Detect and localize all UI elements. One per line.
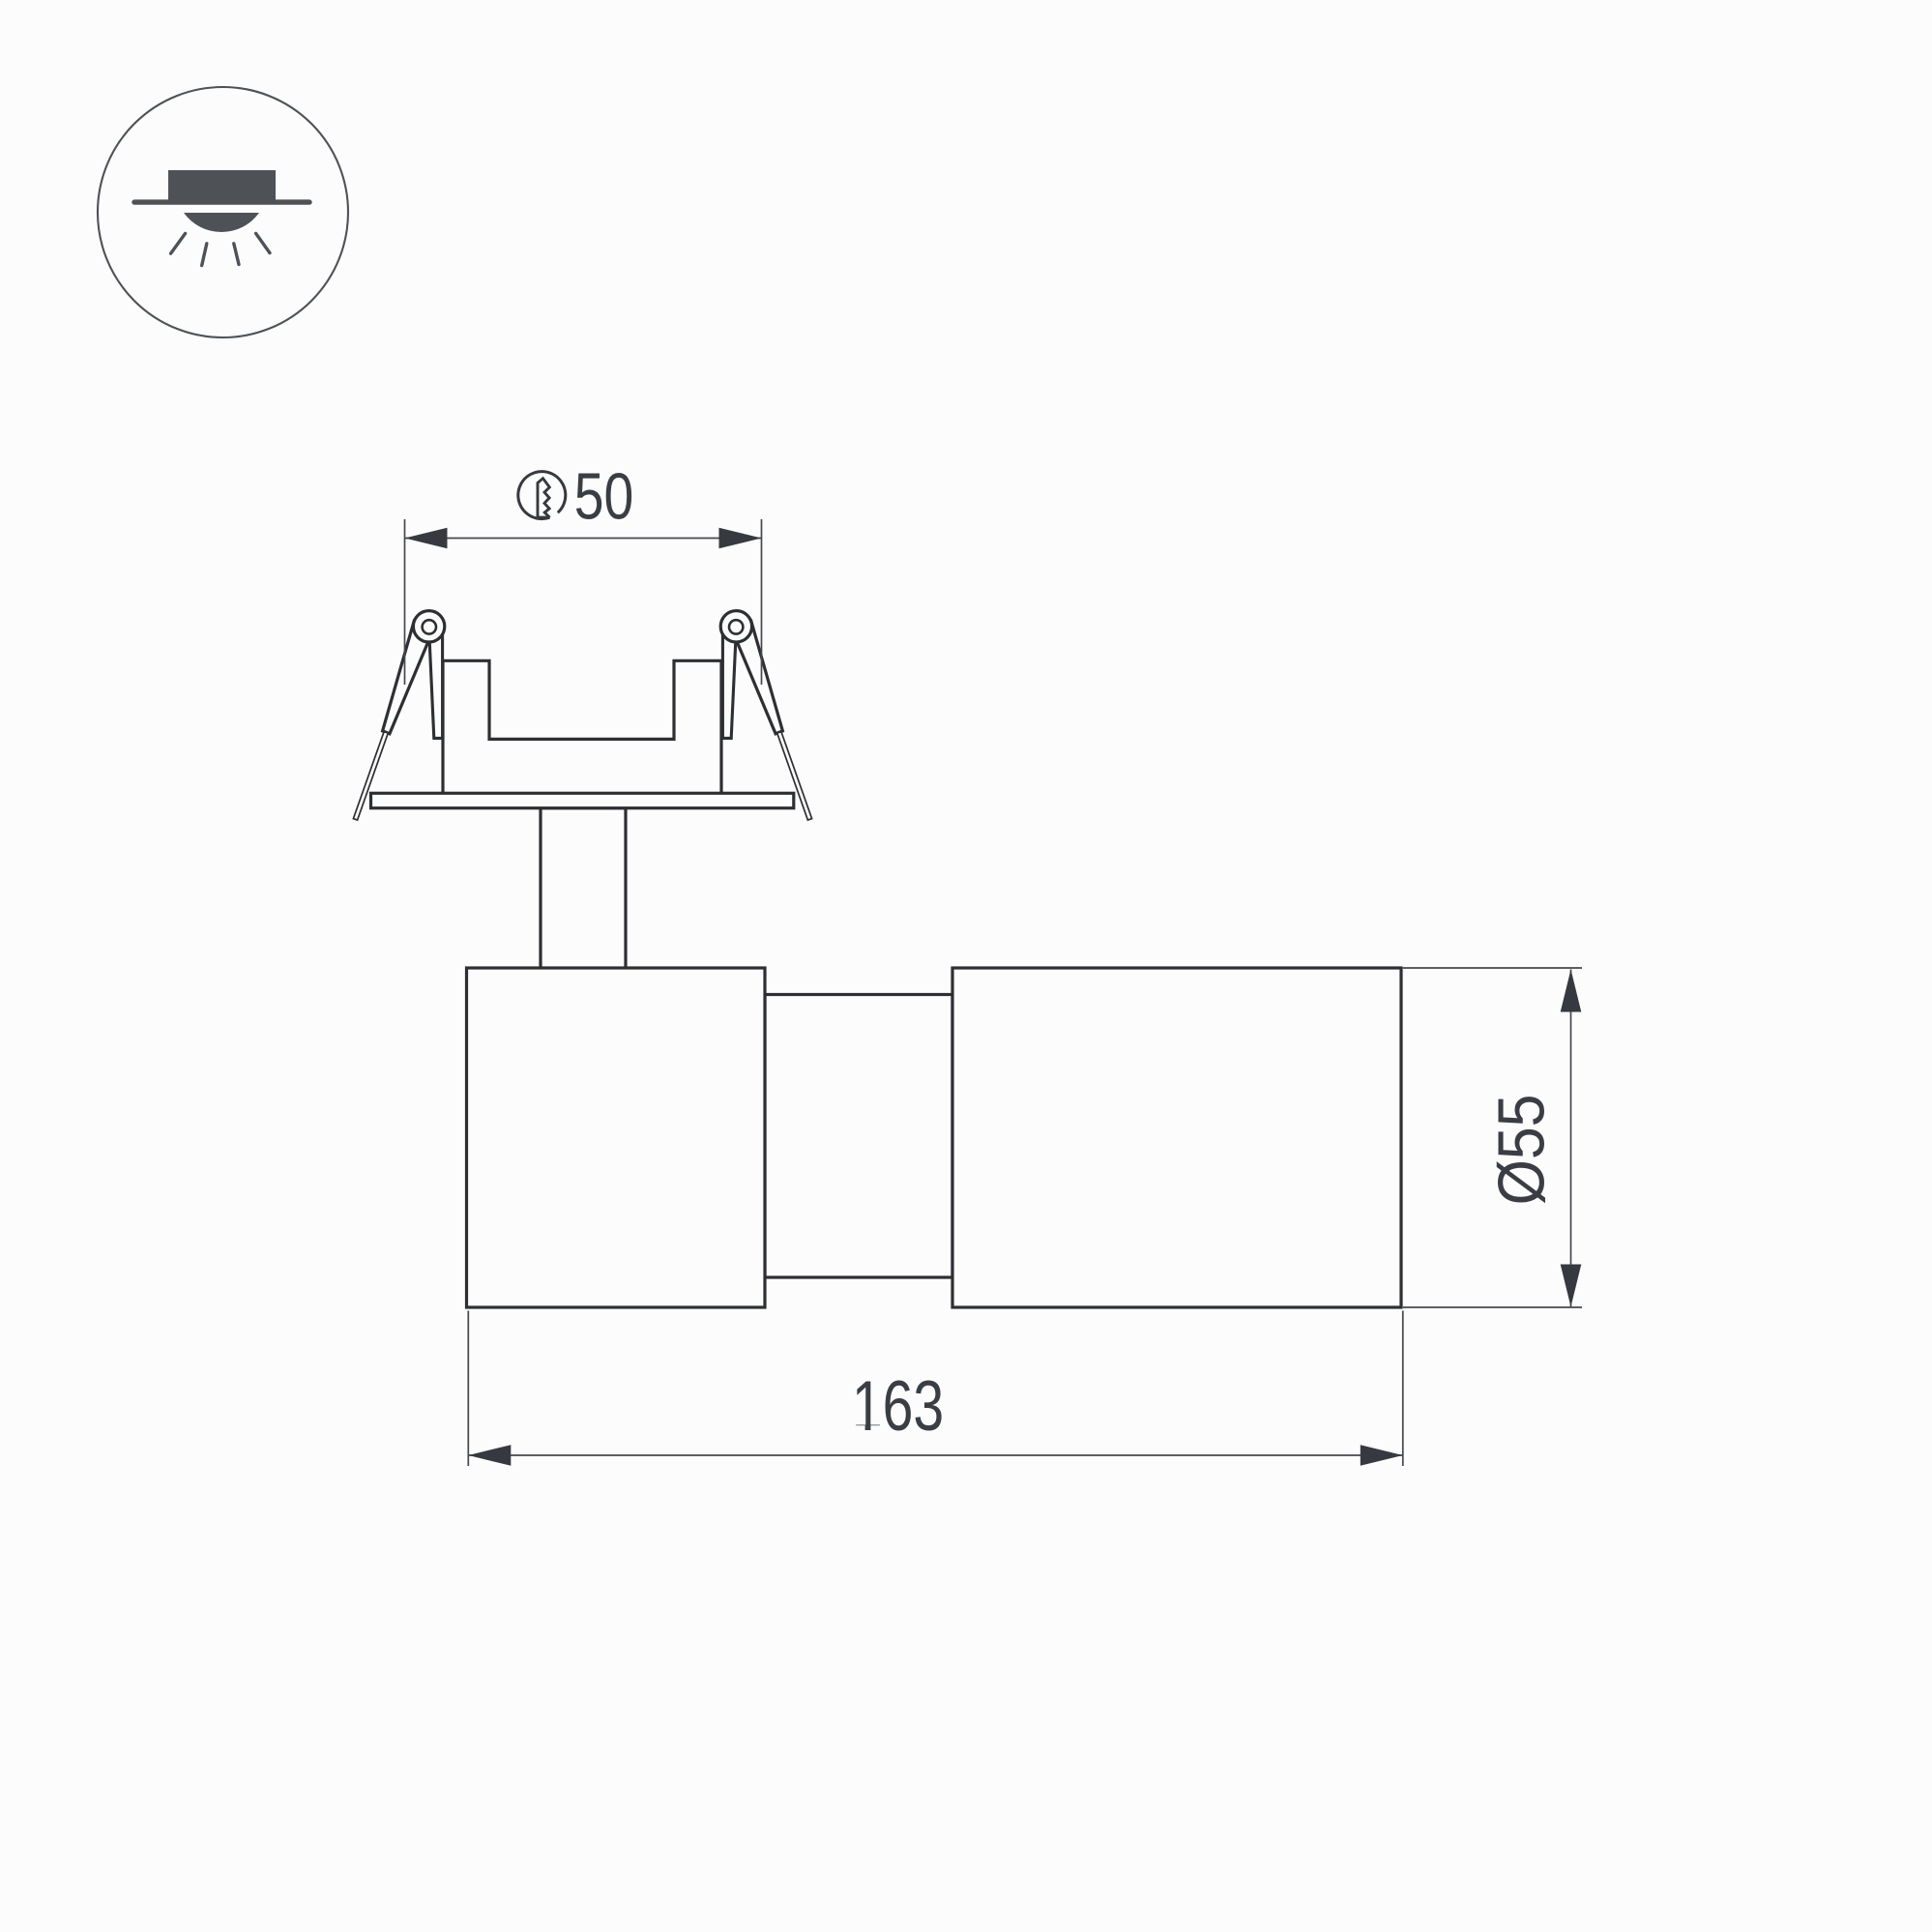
svg-text:Ø55: Ø55: [1485, 1095, 1559, 1206]
svg-text:163: 163: [852, 1366, 944, 1445]
svg-text:50: 50: [574, 460, 634, 533]
